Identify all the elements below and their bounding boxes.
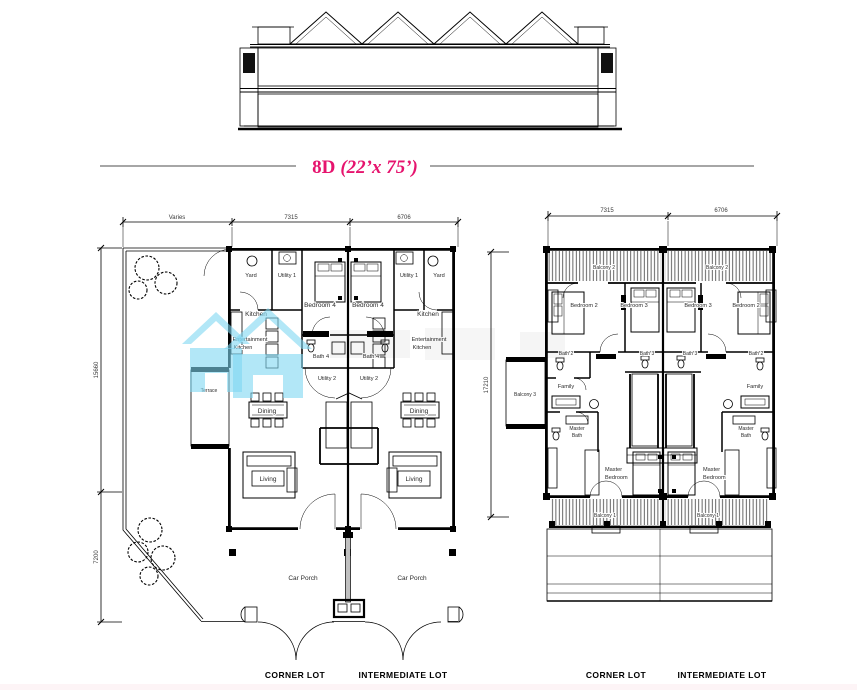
room-label-kitchen-right: Kitchen xyxy=(417,311,439,318)
room-label-masterbedroom-left-2: Bedroom xyxy=(605,475,628,481)
dim-15660: 15660 xyxy=(94,361,100,378)
room-label-bedroom2-right: Bedroom 2 xyxy=(732,303,759,309)
ff-dim-6706: 6706 xyxy=(714,208,728,214)
room-label-yard-left: Yard xyxy=(245,273,256,279)
room-label-family-right: Family xyxy=(747,384,764,390)
ff-carporch-roof xyxy=(547,529,772,601)
room-label-dining-right: Dining xyxy=(410,408,429,415)
lot-boundary xyxy=(123,248,458,622)
ff-balcony2 xyxy=(548,251,772,281)
gf-footer-intermediate-lot: INTERMEDIATE LOT xyxy=(359,670,448,680)
room-label-bath3-right: Bath 3 xyxy=(683,351,698,357)
room-label-masterbedroom-left-1: Master xyxy=(605,467,622,473)
gf-carporch-and-gates xyxy=(241,532,463,660)
tree-icons-top xyxy=(129,256,177,299)
room-label-masterbath-left-2: Bath xyxy=(572,433,583,439)
ff-dim-7315: 7315 xyxy=(600,208,614,214)
gf-left-dimension: 15660 7200 xyxy=(94,245,122,625)
upper-floor-facade xyxy=(258,48,598,86)
gf-top-dimension: Varies 7315 6706 xyxy=(120,215,461,247)
room-label-yard-right: Yard xyxy=(433,273,444,279)
room-label-bedroom2-left: Bedroom 2 xyxy=(570,303,597,309)
ff-footer-intermediate-lot: INTERMEDIATE LOT xyxy=(678,670,767,680)
ff-top-dimension: 7315 6706 xyxy=(545,208,780,246)
drawing-canvas: 8D(22’x 75’) Varies 7315 6706 15660 7200 xyxy=(0,0,857,690)
room-label-masterbath-right-2: Bath xyxy=(741,433,752,439)
dim-varies: Varies xyxy=(169,215,186,221)
room-label-living-right: Living xyxy=(406,476,423,483)
floorplan-sheet: 8D(22’x 75’) Varies 7315 6706 15660 7200 xyxy=(0,0,857,690)
bottom-strip xyxy=(0,684,857,690)
room-label-bedroom3-left: Bedroom 3 xyxy=(620,303,647,309)
ff-footer-corner-lot: CORNER LOT xyxy=(586,670,647,680)
room-label-dining-left: Dining xyxy=(258,408,277,415)
room-label-masterbedroom-right-2: Bedroom xyxy=(703,475,726,481)
dim-7315: 7315 xyxy=(284,215,298,221)
room-label-masterbath-left-1: Master xyxy=(569,426,585,432)
plan-title: 8D(22’x 75’) xyxy=(312,157,418,178)
room-label-utility1-left: Utility 1 xyxy=(278,273,296,279)
room-label-utility1-right: Utility 1 xyxy=(400,273,418,279)
ff-left-dimension: 17210 xyxy=(484,249,509,520)
room-label-bedroom4-right: Bedroom 4 xyxy=(352,302,384,309)
room-label-balcony3: Balcony 3 xyxy=(514,392,536,398)
room-label-family-left: Family xyxy=(558,384,575,390)
ff-dim-17210: 17210 xyxy=(484,376,490,393)
room-label-bedroom4-left: Bedroom 4 xyxy=(304,302,336,309)
house-watermark-icon xyxy=(182,308,565,398)
room-label-bath3-left: Bath 3 xyxy=(640,351,655,357)
ground-floor-plan: Varies 7315 6706 15660 7200 xyxy=(94,215,463,680)
room-label-carporch-left: Car Porch xyxy=(288,575,318,582)
room-label-masterbath-right-1: Master xyxy=(738,426,754,432)
gf-outer-walls xyxy=(228,248,455,531)
faint-watermark-text xyxy=(330,328,565,360)
lower-floor-facade xyxy=(258,94,598,127)
dim-7200: 7200 xyxy=(94,550,100,564)
dim-6706: 6706 xyxy=(397,215,411,221)
room-label-masterbedroom-right-1: Master xyxy=(703,467,720,473)
roof-gables xyxy=(252,12,608,44)
room-label-bath2-right: Bath 2 xyxy=(749,351,764,357)
room-label-balcony2-left: Balcony 2 xyxy=(593,265,615,271)
room-label-utility2-left: Utility 2 xyxy=(318,376,336,382)
room-label-carporch-right: Car Porch xyxy=(397,575,427,582)
room-label-balcony1-right: Balcony 1 xyxy=(697,513,719,519)
room-label-balcony1-left: Balcony 1 xyxy=(594,513,616,519)
first-floor-plan: 7315 6706 17210 xyxy=(484,208,780,680)
room-label-bedroom3-right: Bedroom 3 xyxy=(684,303,711,309)
gf-footer-corner-lot: CORNER LOT xyxy=(265,670,326,680)
room-label-living-left: Living xyxy=(260,476,277,483)
room-label-utility2-right: Utility 2 xyxy=(360,376,378,382)
front-elevation-drawing xyxy=(238,12,622,129)
room-label-bath4-left: Bath 4 xyxy=(313,354,329,360)
room-label-balcony2-right: Balcony 2 xyxy=(706,265,728,271)
sheet-title: 8D(22’x 75’) xyxy=(100,157,754,178)
tree-icons-bottom xyxy=(128,518,175,585)
